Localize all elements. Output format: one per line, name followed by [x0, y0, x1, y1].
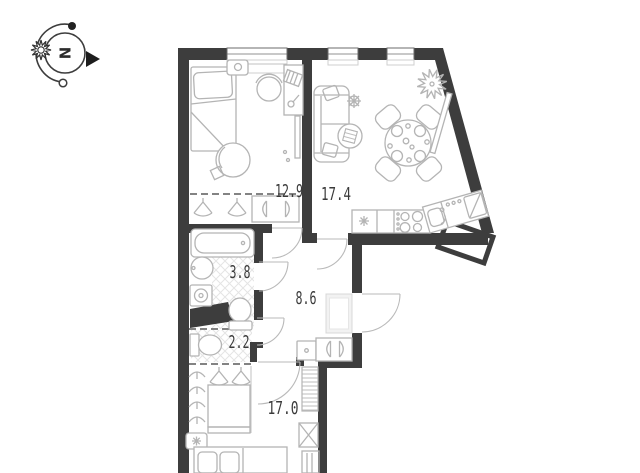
floor-lamp	[347, 94, 361, 108]
room-label-wc: 2.2	[229, 332, 250, 353]
washing-machine	[190, 285, 212, 306]
nightstand	[227, 60, 248, 75]
bathroom-right-wall-lower	[254, 290, 263, 320]
wc-door	[257, 318, 284, 345]
north-letter: N	[56, 47, 74, 60]
desk-chair	[256, 74, 282, 101]
desk	[283, 65, 303, 115]
left-exterior-wall	[178, 48, 189, 473]
wardrobe-2	[189, 366, 251, 433]
bathroom-sink	[191, 257, 213, 279]
hall-right-wall-upper	[352, 245, 362, 293]
sofa	[314, 85, 349, 162]
hall-wardrobe	[316, 338, 352, 361]
room-label-hallway: 8.6	[296, 288, 317, 309]
dresser	[302, 367, 318, 411]
bathroom-right-wall-upper	[254, 233, 263, 263]
room-label-bedroom-2: 17.0	[268, 398, 299, 419]
room-label-bedroom-1: 12.9	[275, 181, 303, 202]
coffee-table	[338, 124, 362, 148]
bedroom-2-furniture	[186, 366, 319, 473]
entrance-door	[362, 294, 400, 332]
shoe-cabinet	[297, 341, 316, 360]
doormat	[326, 294, 352, 333]
bathtub	[191, 229, 254, 257]
fan-box	[299, 423, 318, 447]
compass-icon: N	[31, 22, 100, 87]
bed-2	[194, 447, 287, 473]
floor-plan-svg: N	[0, 0, 640, 473]
living-door	[317, 239, 347, 269]
sunrise-dot	[68, 22, 76, 30]
vent-icon	[359, 216, 369, 226]
bedroom-door-stub	[302, 224, 312, 233]
room2-door-jamb-left	[250, 348, 257, 362]
radiator	[284, 116, 301, 162]
bedroom-door	[272, 228, 302, 258]
partition-foot	[302, 233, 317, 243]
kitchen-bottom-wall	[348, 233, 488, 245]
sunset-dot	[59, 79, 67, 87]
bed	[191, 67, 236, 151]
floor-plan-page: N	[0, 0, 640, 473]
sun-center	[38, 47, 44, 53]
wc-fixtures	[190, 334, 222, 356]
room-label-living-kitchen: 17.4	[321, 184, 351, 205]
room-label-bathroom: 3.8	[230, 262, 251, 283]
window-living-1-sill	[328, 60, 358, 65]
bathroom-door	[259, 262, 288, 291]
north-arrow-icon	[86, 51, 100, 67]
toilet-bathroom	[229, 298, 252, 330]
tall-cabinet	[302, 451, 319, 473]
toilet-wc	[190, 334, 222, 356]
window-living-2-sill	[387, 60, 414, 65]
